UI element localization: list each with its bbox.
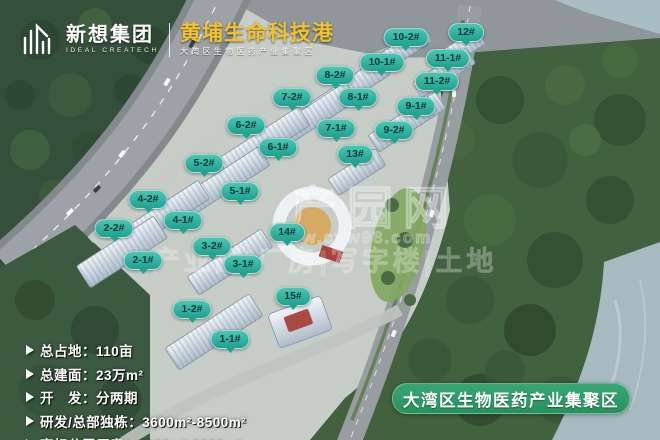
info-text: 总占地：110亩 (40, 340, 133, 360)
building-label-15: 15# (275, 287, 311, 306)
building-label-11-2: 11-2# (415, 72, 459, 91)
arrow-icon (26, 369, 34, 379)
company-logo-icon (20, 22, 56, 58)
cluster-badge-text: 大湾区生物医药产业集聚区 (403, 387, 619, 411)
info-text: 总建面：23万m² (40, 364, 144, 384)
info-text: 高标分层厂房：1000m²-3000m² (40, 434, 242, 440)
building-label-12: 12# (448, 23, 484, 42)
info-row-phases: 开 发：分两期 (26, 387, 246, 407)
project-title: 黄埔生命科技港 (180, 23, 334, 44)
arrow-icon (26, 416, 34, 426)
project-subtitle: 大湾区生物医药产业集聚区 (180, 48, 334, 56)
building-label-1-2: 1-2# (172, 300, 211, 319)
cluster-badge: 大湾区生物医药产业集聚区 (392, 383, 630, 414)
arrow-icon (26, 345, 34, 355)
company-name: 新想集团 IDEAL CREATECH (66, 25, 159, 55)
building-label-11-1: 11-1# (426, 49, 470, 68)
building-label-8-2: 8-2# (315, 66, 354, 85)
building-label-6-1: 6-1# (258, 138, 297, 157)
header-divider (169, 23, 170, 57)
building-label-5-1: 5-1# (220, 182, 259, 201)
building-label-13: 13# (337, 145, 373, 164)
company-name-cn: 新想集团 (66, 25, 159, 45)
info-panel: 总占地：110亩 总建面：23万m² 开 发：分两期 研发/总部独栋：3600m… (26, 340, 246, 440)
building-label-10-1: 10-1# (360, 53, 405, 72)
building-label-2-1: 2-1# (123, 251, 162, 270)
building-label-5-2: 5-2# (184, 154, 223, 173)
header: 新想集团 IDEAL CREATECH 黄埔生命科技港 大湾区生物医药产业集聚区 (20, 22, 334, 58)
poster-canvas: 产园网 www.cyw98.com 产业园|厂房|写字楼|土地 10-2#12#… (0, 0, 660, 440)
info-row-standalone: 研发/总部独栋：3600m²-8500m² (26, 411, 246, 431)
project-name: 黄埔生命科技港 大湾区生物医药产业集聚区 (180, 23, 334, 56)
building-label-4-1: 4-1# (163, 211, 202, 230)
company-name-en: IDEAL CREATECH (66, 48, 159, 55)
building-label-3-1: 3-1# (223, 255, 262, 274)
info-text: 研发/总部独栋：3600m²-8500m² (40, 411, 246, 431)
building-label-9-1: 9-1# (396, 97, 435, 116)
info-text: 开 发：分两期 (40, 387, 138, 407)
info-row-factory: 高标分层厂房：1000m²-3000m² (26, 434, 246, 440)
building-label-7-1: 7-1# (316, 119, 355, 138)
building-label-3-2: 3-2# (192, 237, 231, 256)
arrow-icon (26, 392, 34, 402)
building-label-2-2: 2-2# (94, 219, 133, 238)
building-label-8-1: 8-1# (338, 88, 377, 107)
building-label-14: 14# (269, 223, 305, 242)
building-label-9-2: 9-2# (374, 121, 413, 140)
info-row-floor-area: 总建面：23万m² (26, 364, 246, 384)
building-label-4-2: 4-2# (128, 190, 167, 209)
info-row-land-area: 总占地：110亩 (26, 340, 246, 360)
building-label-10-2: 10-2# (384, 28, 429, 47)
building-label-6-2: 6-2# (226, 116, 265, 135)
building-label-7-2: 7-2# (272, 88, 311, 107)
